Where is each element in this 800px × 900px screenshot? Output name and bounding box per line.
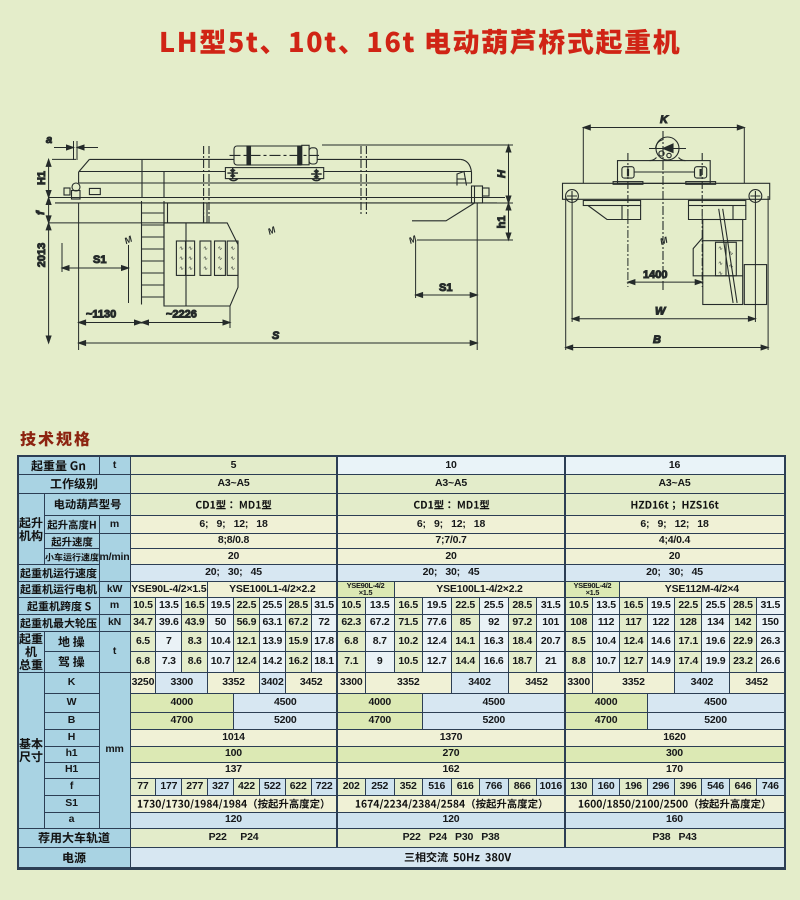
- svg-text:∿: ∿: [230, 256, 235, 262]
- svg-text:M: M: [266, 224, 277, 236]
- svg-text:∿: ∿: [217, 256, 222, 262]
- svg-text:M: M: [123, 234, 134, 246]
- svg-text:∿: ∿: [203, 266, 208, 272]
- svg-text:∿: ∿: [188, 246, 193, 252]
- svg-text:M: M: [658, 235, 669, 247]
- svg-text:∿: ∿: [718, 246, 723, 252]
- svg-text:∿: ∿: [230, 266, 235, 272]
- svg-text:∿: ∿: [728, 251, 733, 257]
- svg-text:∿: ∿: [217, 246, 222, 252]
- svg-text:∿: ∿: [188, 256, 193, 262]
- svg-text:∿: ∿: [179, 266, 184, 272]
- svg-text:1400: 1400: [643, 269, 667, 281]
- svg-text:S1: S1: [439, 282, 452, 294]
- svg-text:a: a: [46, 134, 52, 146]
- svg-text:S: S: [272, 330, 280, 342]
- svg-text:h1: h1: [496, 216, 508, 229]
- svg-text:f: f: [35, 210, 47, 215]
- svg-text:H1: H1: [36, 171, 48, 185]
- svg-text:H: H: [496, 169, 508, 178]
- svg-text:∿: ∿: [203, 256, 208, 262]
- svg-text:~2226: ~2226: [166, 309, 197, 321]
- svg-text:∿: ∿: [188, 266, 193, 272]
- svg-text:B: B: [653, 334, 661, 346]
- svg-text:~1130: ~1130: [86, 309, 116, 321]
- svg-text:K: K: [660, 114, 669, 126]
- svg-text:∿: ∿: [179, 256, 184, 262]
- svg-text:S1: S1: [93, 254, 106, 266]
- svg-text:W: W: [655, 306, 667, 318]
- svg-text:∿: ∿: [230, 246, 235, 252]
- svg-text:∿: ∿: [728, 264, 733, 270]
- svg-text:∿: ∿: [217, 266, 222, 272]
- svg-text:∿: ∿: [179, 246, 184, 252]
- svg-text:M: M: [407, 233, 418, 245]
- svg-text:∿: ∿: [718, 271, 723, 277]
- svg-text:∿: ∿: [203, 246, 208, 252]
- svg-text:∿: ∿: [718, 261, 723, 267]
- svg-text:2013: 2013: [36, 243, 48, 267]
